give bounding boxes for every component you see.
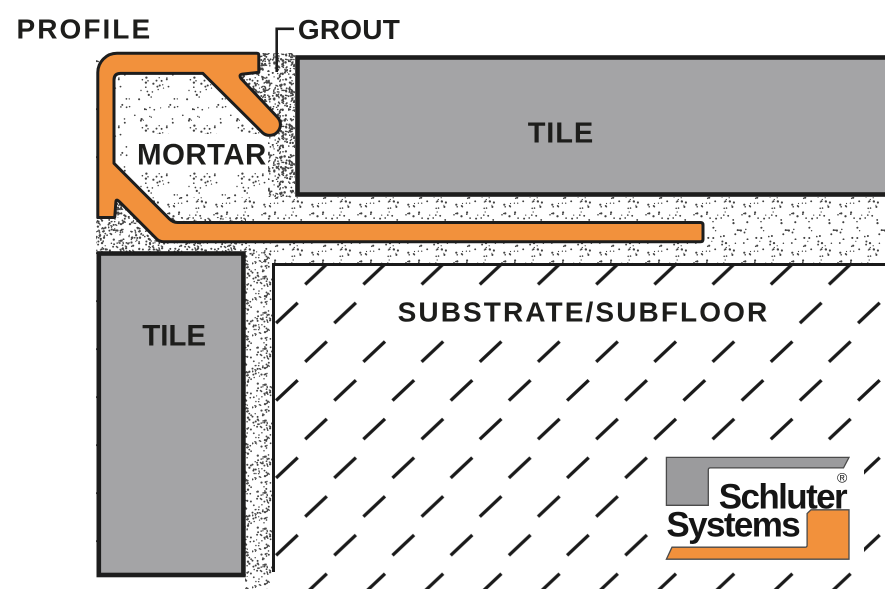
svg-text:SUBSTRATE/SUBFLOOR: SUBSTRATE/SUBFLOOR bbox=[398, 297, 770, 328]
svg-text:®: ® bbox=[837, 470, 848, 486]
svg-text:Systems: Systems bbox=[666, 506, 800, 545]
svg-text:TILE: TILE bbox=[142, 320, 206, 353]
svg-text:PROFILE: PROFILE bbox=[17, 14, 153, 45]
svg-text:GROUT: GROUT bbox=[298, 14, 400, 45]
svg-text:MORTAR: MORTAR bbox=[137, 139, 267, 172]
svg-text:TILE: TILE bbox=[528, 117, 594, 149]
